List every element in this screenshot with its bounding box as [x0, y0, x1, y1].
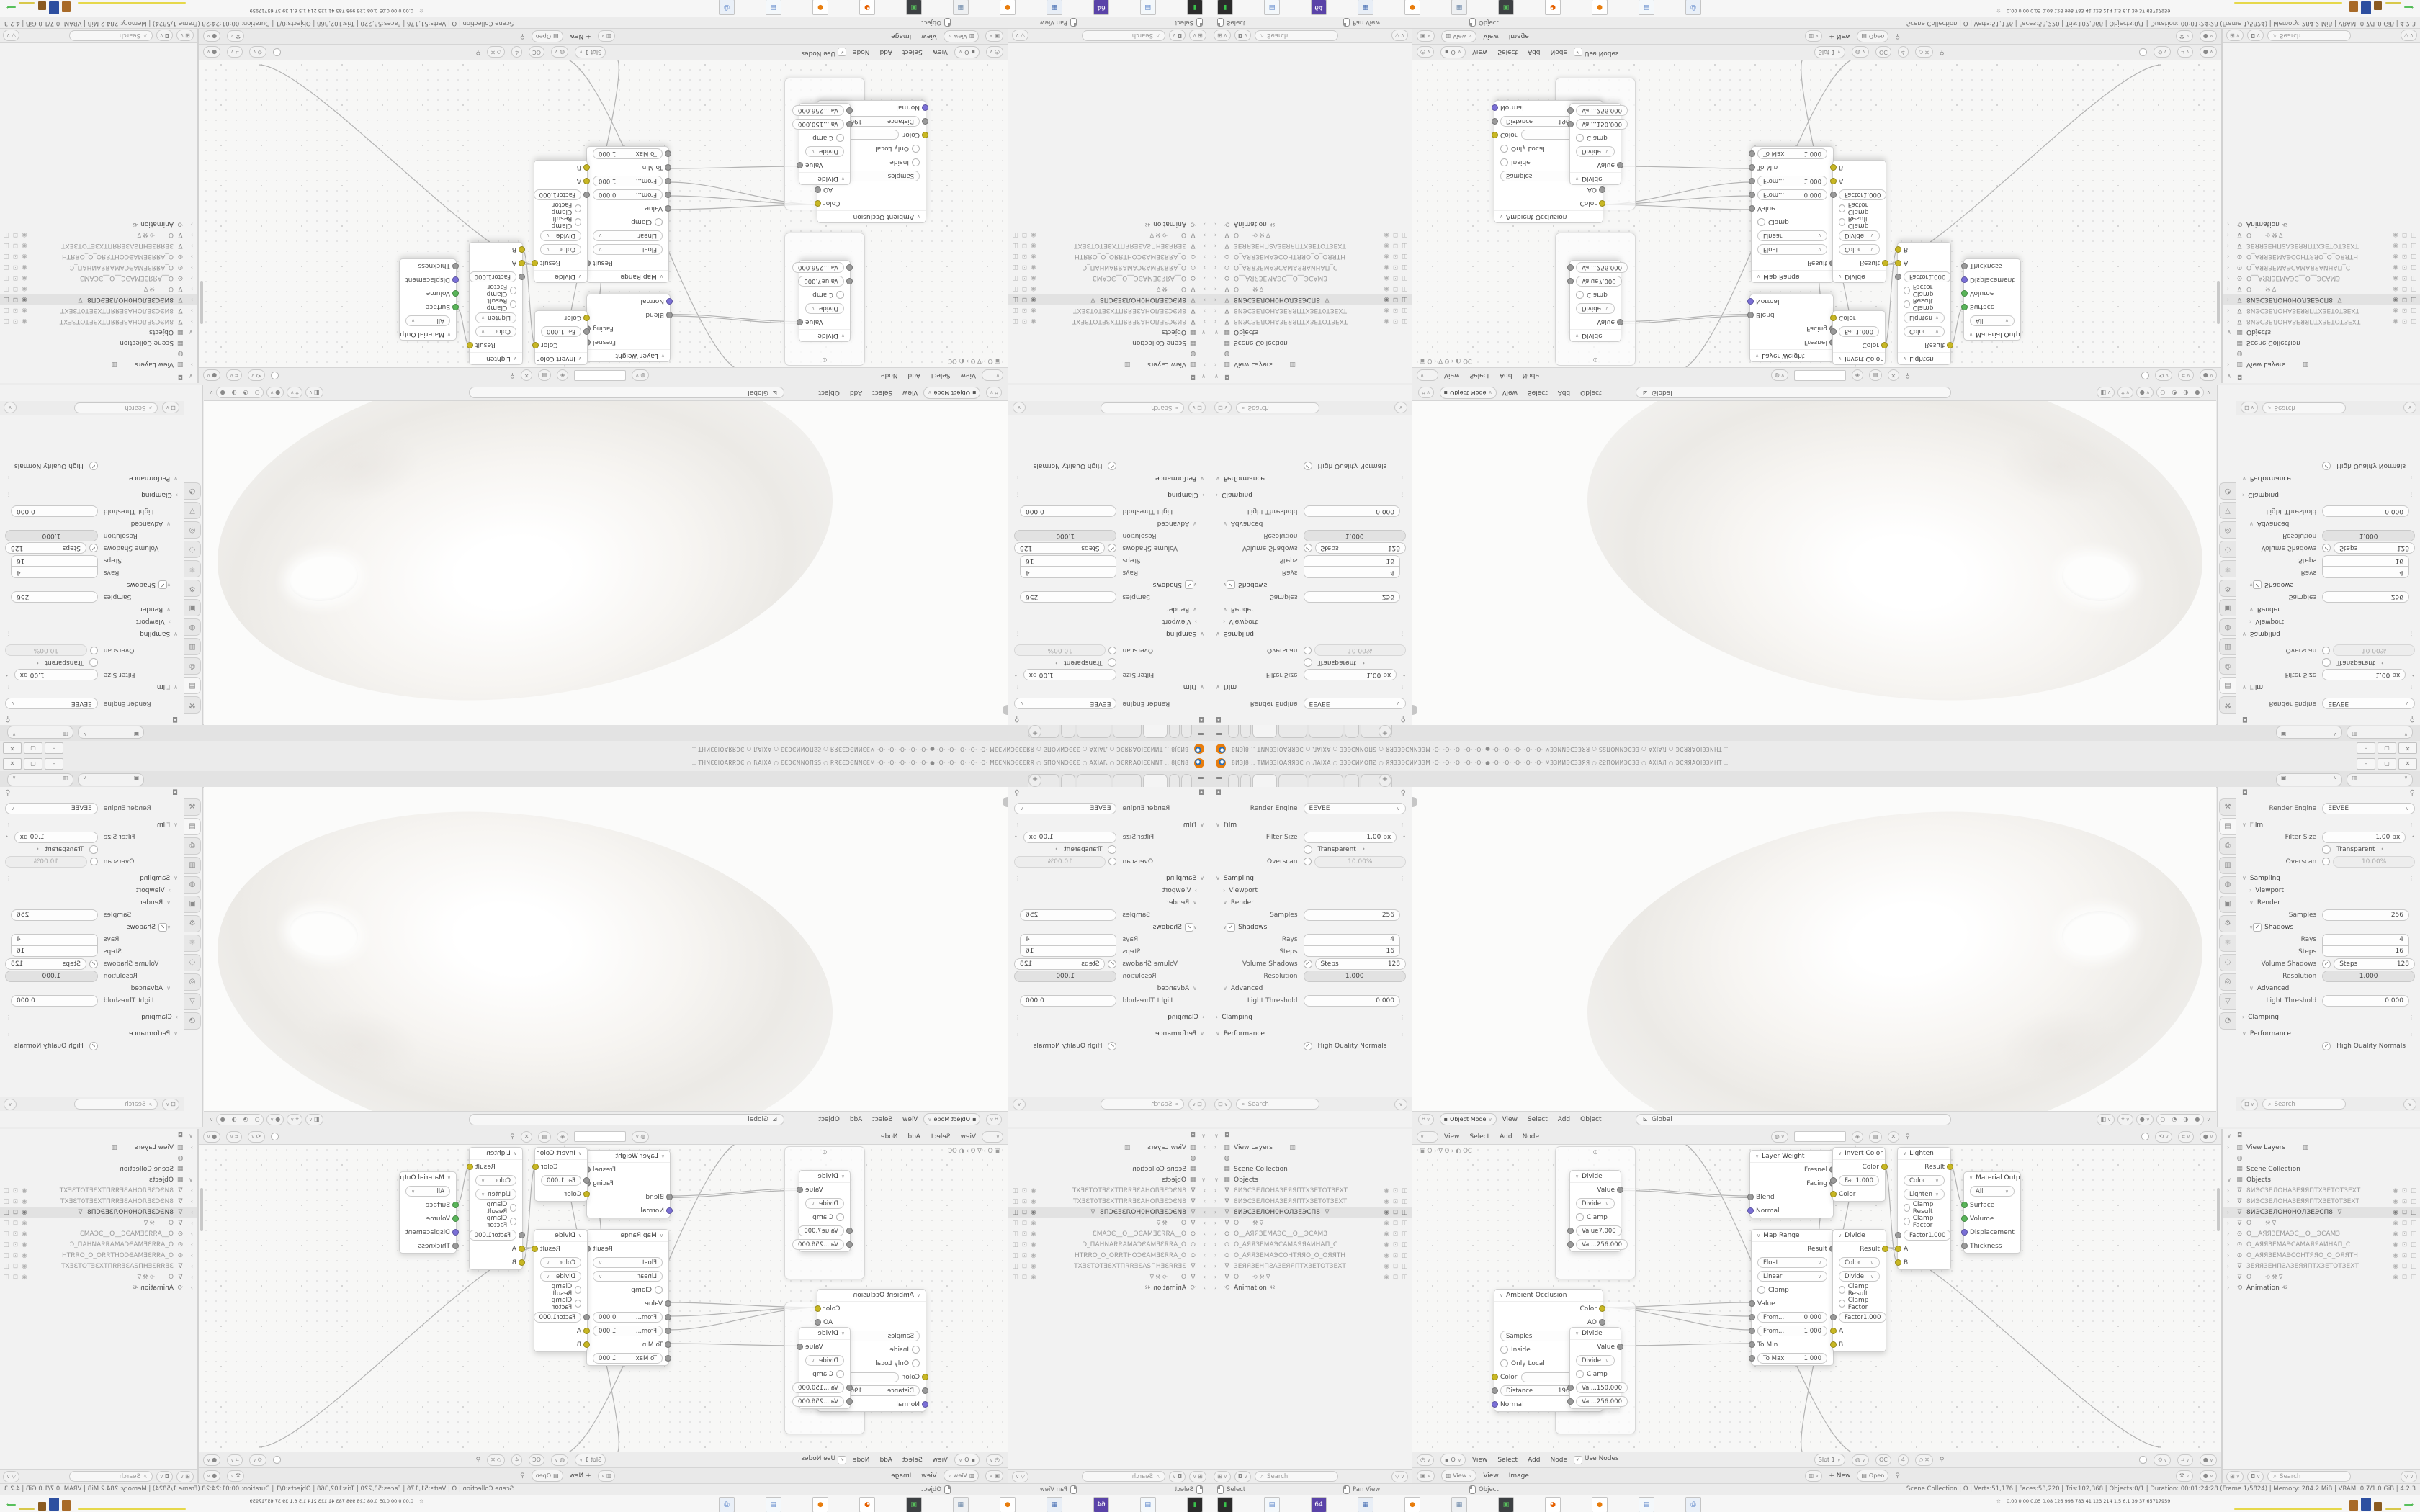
node-dropdown[interactable]: Color∨	[540, 1257, 581, 1268]
outliner-row[interactable]: › ⊙ О_АЯЯЗЕМАЭСАМАЯЯАИНАП_С ◉ ⊡ ◫	[1210, 262, 1412, 273]
subsection-label[interactable]: Viewport	[1229, 618, 1258, 626]
viewport-disable-icon[interactable]: ⊡	[1393, 275, 1398, 282]
outliner-row[interactable]: › ⟲ Animation 42	[1210, 219, 1412, 230]
hide-toggle-icon[interactable]: ◉	[22, 264, 27, 271]
viewport-disable-icon[interactable]: ⊡	[1393, 1230, 1398, 1238]
section-label[interactable]: Clamping	[2248, 1014, 2279, 1021]
subsection-label[interactable]: Advanced	[131, 985, 163, 992]
node-row[interactable]: B	[1898, 243, 1950, 256]
section-label[interactable]: Film	[1224, 684, 1237, 691]
outliner-row[interactable]: › ⊙ О_АЯЯЗЕМАЭСОНТЯЯО_О_ОЯЯТН ◉ ⊡ ◫	[1008, 1250, 1210, 1261]
grid-snap-button[interactable]: ⌗∨	[227, 47, 243, 58]
node-dropdown[interactable]: Color∨	[540, 244, 581, 255]
render-disable-icon[interactable]: ◫	[1402, 1274, 1407, 1281]
workspace-tab[interactable]	[1345, 774, 1359, 787]
node-row[interactable]: Color	[1833, 1187, 1885, 1201]
shader-context-dropdown[interactable]: ▪О∨	[1440, 46, 1466, 58]
outliner-row[interactable]: › ∇ 8ИЭСЗЕЛОНАЗЕЯЯПТХЗЕТОТЗЕХТ ◉ ⊡ ◫	[1008, 316, 1210, 327]
shader-footer-menu-item[interactable]: View	[1472, 1457, 1487, 1464]
viewport-disable-icon[interactable]: ⊡	[13, 286, 18, 293]
shader-context-dropdown[interactable]: ▪О∨	[954, 46, 980, 58]
workspace-tab[interactable]	[1169, 774, 1180, 787]
properties-tab-icon[interactable]: ◍	[2219, 618, 2236, 636]
material-id-icon[interactable]: ◍∨	[551, 1454, 568, 1466]
section-label[interactable]: Sampling	[1224, 631, 1254, 638]
donut-mesh[interactable]	[204, 385, 855, 725]
render-disable-icon[interactable]: ◫	[2411, 1220, 2416, 1227]
hide-toggle-icon[interactable]: ◉	[1031, 297, 1036, 304]
render-disable-icon[interactable]: ◫	[1013, 307, 1018, 315]
outliner-row[interactable]: › ∇ ЗЕЯЯЗЕНПƧАЗЕЯЯПТХЗЕТОТЗЕХТ ◉ ⊡ ◫	[1008, 1261, 1210, 1272]
outliner-row[interactable]: › ∇ 8ИЭСЗЕЛОН0НОЛЗЕЭСП8 ∇ ◉ ⊡ ◫	[1210, 294, 1412, 305]
snap-toggle[interactable]	[271, 1133, 279, 1140]
outliner-row[interactable]: ▦ Scene Collection	[1008, 1164, 1210, 1174]
node-row[interactable]: Val...256.000	[1570, 1238, 1621, 1251]
output-socket[interactable]	[1947, 342, 1953, 348]
tool-settings-button[interactable]: ⚒∨	[227, 1470, 244, 1482]
taskbar-app-icon[interactable]: ▦	[953, 1497, 969, 1512]
section-label[interactable]: Clamping	[1222, 492, 1252, 499]
viewport-disable-icon[interactable]: ⊡	[1393, 243, 1398, 250]
viewport-3d[interactable]: ⌗∨ ▪Object Mode∨ ViewSelectAddObject ⊾Gl…	[204, 787, 1008, 1127]
volume-shadows-checkbox[interactable]: ✓	[89, 960, 98, 968]
outliner-row[interactable]: › ⊙ О_АЯЯЗЕМАЭСАМАЯЯАИНАП_С ◉ ⊡ ◫	[0, 1239, 197, 1250]
fake-user-button[interactable]: ◈	[1852, 370, 1863, 382]
render-disable-icon[interactable]: ◫	[4, 1230, 9, 1238]
node-row[interactable]: Lighten∨	[1898, 311, 1950, 325]
outliner-row[interactable]: › ⊙ О_АЯЯЗЕМАЭСАМАЯЯАИНАП_С ◉ ⊡ ◫	[2223, 1239, 2420, 1250]
scrollbar[interactable]	[2217, 1188, 2220, 1231]
render-disable-icon[interactable]: ◫	[4, 232, 9, 239]
fake-user-button[interactable]: ◈	[557, 1131, 568, 1143]
overlay-button[interactable]: ●∨	[203, 47, 220, 58]
node-value-field[interactable]: Val...256.000	[792, 1239, 844, 1250]
hide-toggle-icon[interactable]: ◉	[1031, 1252, 1036, 1259]
open-image-button[interactable]: ▤Open	[532, 30, 563, 42]
node-row[interactable]: Factor1.000	[1898, 1228, 1950, 1242]
node-value-field[interactable]: Val...256.000	[792, 262, 844, 273]
properties-tab-icon[interactable]: ◎	[184, 973, 201, 991]
pin-icon[interactable]: ⚲	[2410, 710, 2415, 723]
slot-dropdown[interactable]: Slot 1∨	[1814, 1454, 1845, 1466]
hide-toggle-icon[interactable]: ◉	[22, 1252, 27, 1259]
restore-button[interactable]: ▢	[2378, 742, 2396, 754]
viewport-disable-icon[interactable]: ⊡	[13, 1187, 18, 1194]
value-field[interactable]: 1.00 px	[2322, 832, 2406, 843]
viewport-disable-icon[interactable]: ⊡	[13, 1263, 18, 1270]
hide-toggle-icon[interactable]: ◉	[2393, 1187, 2398, 1194]
node-row[interactable]: A	[534, 174, 587, 188]
outliner-row[interactable]: › ∇ 8ИЭСЗЕЛОНАЗЕЯЯПТХЗЕТОТЗЕХТ ◉ ⊡ ◫	[0, 1185, 197, 1196]
scene-selector[interactable]: ▥∨	[2347, 726, 2413, 739]
grid-snap-button[interactable]: ⌗∨	[227, 1454, 243, 1466]
node-row[interactable]: Color	[535, 338, 587, 352]
node-row[interactable]: Divide∨	[1570, 145, 1621, 158]
section-label[interactable]: Sampling	[1166, 875, 1196, 882]
shader-context-dropdown[interactable]: ▪О∨	[1440, 1454, 1466, 1466]
value-field[interactable]: 1.00 px	[1304, 670, 1397, 681]
overscan-field[interactable]: 10.00%	[1314, 856, 1406, 868]
node-row[interactable]: Fresnel	[1750, 336, 1833, 349]
input-socket[interactable]	[666, 1207, 673, 1214]
node-value-field[interactable]: Factor1.000	[1839, 189, 1886, 200]
shader-node[interactable]: ∨Material Output All∨	[399, 258, 457, 341]
section-label[interactable]: Clamping	[141, 1014, 172, 1021]
render-disable-icon[interactable]: ◫	[4, 1274, 9, 1281]
node-row[interactable]: To Min	[1752, 1338, 1833, 1351]
editor-type-button[interactable]: ⊟∨	[1214, 402, 1232, 414]
taskbar-app-icon[interactable]: ▤	[1639, 0, 1654, 15]
properties-tab-icon[interactable]: ⎙	[184, 837, 201, 855]
viewport-disable-icon[interactable]: ⊡	[2402, 1274, 2407, 1281]
input-socket[interactable]	[665, 1355, 671, 1362]
outliner-display-mode-button[interactable]: ⊞∨	[2226, 30, 2244, 42]
outliner-row[interactable]: › ∇ 8ИЭСЗЕЛОН0НОЛЗЕЭСП8 ∇ ◉ ⊡ ◫	[1008, 294, 1210, 305]
input-socket[interactable]	[1961, 1202, 1968, 1208]
render-disable-icon[interactable]: ◫	[1013, 243, 1018, 250]
close-button[interactable]: ✕	[3, 758, 22, 770]
node-row[interactable]: Normal	[587, 1204, 670, 1218]
taskbar-app-icon[interactable]: ▤	[1639, 1497, 1654, 1512]
outliner-row[interactable]: ∨ ▦ Objects	[0, 1174, 197, 1185]
section-checkbox[interactable]: ✓	[1185, 581, 1193, 590]
pin-icon[interactable]: ⚲	[1940, 1457, 1945, 1464]
node-value-field[interactable]: From...0.000	[1757, 189, 1827, 200]
viewport-menu-item[interactable]: Object	[1580, 1116, 1601, 1123]
outliner-row[interactable]: › ⊙ О_АЯЯЗЕМАЭСОНТЯЯО_О_ОЯЯТН ◉ ⊡ ◫	[1008, 251, 1210, 262]
section-checkbox[interactable]: ✓	[158, 581, 167, 590]
node-row[interactable]: Val...150.000	[799, 117, 850, 131]
node-value-field[interactable]: Factor1.000	[534, 189, 581, 200]
node-row[interactable]: To Min	[1752, 161, 1833, 174]
input-socket[interactable]	[1961, 304, 1968, 310]
node-row[interactable]: Clamp Factor	[470, 284, 522, 297]
node-row[interactable]: All∨	[400, 1184, 456, 1198]
node-dropdown[interactable]: Color∨	[1839, 1257, 1880, 1268]
outliner-row[interactable]: › ⟲ Animation 42	[2223, 219, 2420, 230]
image-editor-type-button[interactable]: ▣∨	[1417, 31, 1435, 42]
steps-field[interactable]: Steps128	[1315, 958, 1406, 970]
shading-mode-button[interactable]: ●	[2192, 1115, 2203, 1125]
shading-mode-button[interactable]: ◔	[240, 388, 251, 398]
output-socket[interactable]	[1599, 1319, 1605, 1326]
outliner-filter-button[interactable]: ◘∨	[1169, 1471, 1186, 1482]
input-socket[interactable]	[665, 1300, 671, 1307]
hide-toggle-icon[interactable]: ◉	[22, 253, 27, 261]
value-field[interactable]: 4	[2322, 567, 2409, 579]
hide-toggle-icon[interactable]: ◉	[2393, 232, 2398, 239]
outliner-filter-dropdown[interactable]: ▽∨	[2401, 30, 2417, 42]
render-disable-icon[interactable]: ◫	[4, 1220, 9, 1227]
steps-field[interactable]: Steps128	[1315, 543, 1406, 554]
pin-icon[interactable]: ⚲	[1895, 1472, 1900, 1480]
node-row[interactable]: Color	[1494, 197, 1603, 210]
input-socket[interactable]	[1749, 1314, 1755, 1320]
input-socket[interactable]	[1567, 278, 1574, 284]
shader-menu-item[interactable]: Add	[1500, 1133, 1512, 1140]
node-row[interactable]: Clamp Result	[1833, 1283, 1886, 1297]
restore-button[interactable]: ▢	[2378, 758, 2396, 770]
resolution-slider[interactable]: 1.000	[2322, 531, 2415, 542]
render-disable-icon[interactable]: ◫	[2411, 297, 2416, 304]
taskbar-app-icon[interactable]: ▮	[1187, 0, 1203, 15]
node-row[interactable]: Clamp	[1752, 1283, 1833, 1297]
render-disable-icon[interactable]: ◫	[1402, 1187, 1407, 1194]
properties-search-input[interactable]: ⌕Search	[74, 402, 158, 413]
node-row[interactable]: Facing	[1750, 322, 1833, 336]
outliner-row[interactable]: › ∇ 8ИЭСЗЕЛОНАЗЕЯЯПТХЗЕТ0ТЗЕХТ ◉ ⊡ ◫	[2223, 1196, 2420, 1207]
node-row[interactable]: Linear∨	[587, 229, 668, 243]
outliner-row[interactable]: › ⊙ О_АЯЯЗЕМАЭСОНТЯЯО_О_ОЯЯТН ◉ ⊡ ◫	[2223, 251, 2420, 262]
overlay-button[interactable]: ●∨	[203, 370, 220, 382]
overscan-field[interactable]: 10.00%	[2333, 856, 2415, 868]
node-dropdown[interactable]: Divide∨	[1839, 230, 1880, 241]
workspace-menu-icon[interactable]: ≡	[1216, 774, 1222, 783]
checkbox[interactable]	[2322, 845, 2331, 854]
hide-toggle-icon[interactable]: ◉	[1384, 1230, 1389, 1238]
node-row[interactable]: From...1.000	[1752, 1324, 1833, 1338]
restore-button[interactable]: ▢	[24, 758, 42, 770]
hide-toggle-icon[interactable]: ◉	[1384, 286, 1389, 293]
outliner-row[interactable]: › ∇ О ⟲ ⚒ ∇ ◉ ⊡ ◫	[2223, 1272, 2420, 1282]
image-menu-item[interactable]: View	[921, 1472, 936, 1480]
outliner-row[interactable]: ◍	[1210, 1153, 1412, 1164]
scene-selector[interactable]: ▥∨	[7, 726, 73, 739]
workspace-tab[interactable]	[1252, 725, 1277, 738]
viewport-disable-icon[interactable]: ⊡	[13, 1274, 18, 1281]
input-socket[interactable]	[1567, 107, 1574, 114]
node-row[interactable]: Color	[535, 1187, 587, 1201]
outliner-row[interactable]: › ∇ О ⟲ ⚒ ∇ ◉ ⊡ ◫	[1210, 1272, 1412, 1282]
shader-menu-item[interactable]: Select	[1469, 372, 1489, 379]
volume-shadows-checkbox[interactable]: ✓	[2322, 544, 2331, 553]
editor-type-button[interactable]: ⊟∨	[162, 1099, 179, 1110]
node-row[interactable]: Thickness	[400, 259, 456, 273]
value-field[interactable]: 16	[11, 555, 98, 567]
input-socket[interactable]	[1749, 1355, 1755, 1362]
viewport-snap-button[interactable]: ⌗∨	[986, 1114, 1002, 1125]
viewport-disable-icon[interactable]: ⊡	[1393, 1241, 1398, 1248]
material-name-label[interactable]: ОС	[1875, 47, 1891, 58]
outliner-filter-dropdown[interactable]: ▽∨	[1391, 30, 1408, 42]
properties-tab-icon[interactable]: ▽	[184, 502, 201, 519]
node-value-field[interactable]: From...1.000	[593, 1326, 663, 1336]
render-disable-icon[interactable]: ◫	[1013, 318, 1018, 325]
viewport-disable-icon[interactable]: ⊡	[1022, 318, 1027, 325]
input-socket[interactable]	[846, 1385, 853, 1391]
node-row[interactable]: B	[470, 243, 522, 256]
close-button[interactable]: ✕	[2398, 742, 2417, 754]
outliner-row[interactable]: › ∇ 8ИЭСЗЕЛОНАЗЕЯЯПТХЗЕТОТЗЕХТ ◉ ⊡ ◫	[1008, 1185, 1210, 1196]
subsection-label[interactable]: Viewport	[1162, 887, 1191, 894]
material-name-label[interactable]: ОС	[529, 47, 544, 58]
value-field[interactable]: 4	[2322, 934, 2409, 945]
viewport-disable-icon[interactable]: ⊡	[1022, 286, 1027, 293]
node-row[interactable]: All∨	[1964, 1184, 2020, 1198]
taskbar-app-icon[interactable]: ▤	[766, 1497, 781, 1512]
input-socket[interactable]	[1567, 121, 1574, 127]
shading-mode-button[interactable]: ◑	[228, 388, 240, 398]
node-value-field[interactable]: Val...256.000	[792, 105, 844, 116]
pin-icon[interactable]: ⚲	[1895, 33, 1900, 40]
render-disable-icon[interactable]: ◫	[2411, 1187, 2416, 1194]
input-socket[interactable]	[583, 178, 590, 184]
node-dropdown[interactable]: Color∨	[1904, 326, 1945, 337]
node-row[interactable]: From...0.000	[587, 188, 668, 202]
node-row[interactable]: Lighten∨	[470, 311, 522, 325]
node-row[interactable]: Val...256.000	[1570, 1395, 1621, 1408]
overscan-checkbox[interactable]	[90, 858, 98, 865]
viewport-menu-item[interactable]: View	[902, 390, 918, 397]
input-socket[interactable]	[665, 1328, 671, 1334]
taskbar-app-icon[interactable]: ◕	[1545, 1497, 1561, 1512]
editor-type-button[interactable]: ⊟∨	[2241, 1099, 2258, 1110]
workspace-tab[interactable]	[1278, 725, 1307, 738]
overscan-field[interactable]: 10.00%	[2333, 645, 2415, 657]
outliner-row[interactable]: › ▥ View Layers ▥	[0, 1142, 197, 1153]
node-row[interactable]: Clamp Result	[534, 215, 587, 229]
input-socket[interactable]	[1749, 192, 1755, 198]
value-field[interactable]: 16	[2322, 945, 2409, 957]
viewport-disable-icon[interactable]: ⊡	[2402, 1198, 2407, 1205]
overscan-checkbox[interactable]	[1108, 647, 1116, 654]
resolution-slider[interactable]: 1.000	[1014, 971, 1116, 982]
taskbar-app-icon[interactable]: ▦	[953, 0, 969, 15]
input-socket[interactable]	[1567, 1241, 1574, 1248]
render-disable-icon[interactable]: ◫	[4, 1241, 9, 1248]
node-row[interactable]: Displacement	[1964, 1225, 2020, 1239]
node-value-field[interactable]: Val...150.000	[792, 119, 844, 130]
value-field[interactable]: 16	[1020, 555, 1116, 567]
outliner-row[interactable]: › ⊙ О__АЯЯЗЕМАЭС__О__ЭСАМЗ ◉ ⊡ ◫	[1008, 1228, 1210, 1239]
outliner-row[interactable]: › ∇ 8ИЭСЗЕЛОНАЗЕЯЯПТХЗЕТ0ТЗЕХТ ◉ ⊡ ◫	[0, 1196, 197, 1207]
hide-toggle-icon[interactable]: ◉	[1031, 1241, 1036, 1248]
image-menu-item[interactable]: View	[1483, 1472, 1498, 1480]
taskbar-app-icon[interactable]: ▦	[1358, 0, 1373, 15]
outliner-row[interactable]: › ⊙ О__АЯЯЗЕМАЭС__О__ЭСАМЗ ◉ ⊡ ◫	[1210, 1228, 1412, 1239]
hide-toggle-icon[interactable]: ◉	[1384, 1209, 1389, 1216]
properties-tab-icon[interactable]: ⚙	[2219, 915, 2236, 932]
shader-menu-item[interactable]: Node	[1523, 1133, 1540, 1140]
hide-toggle-icon[interactable]: ◉	[1031, 1263, 1036, 1270]
node-value-field[interactable]: From...1.000	[1757, 1326, 1827, 1336]
properties-tab-icon[interactable]: ⎙	[2219, 657, 2236, 675]
taskbar-app-icon[interactable]: 64	[1093, 1497, 1109, 1512]
render-disable-icon[interactable]: ◫	[2411, 264, 2416, 271]
node-value-field[interactable]: To Max1.000	[1757, 148, 1827, 159]
node-row[interactable]: Surface	[1964, 1198, 2020, 1212]
outliner-filter-icon[interactable]: ◘	[176, 373, 184, 380]
render-disable-icon[interactable]: ◫	[4, 307, 9, 315]
checkbox[interactable]: ✓	[1304, 462, 1312, 471]
node-value-field[interactable]: Fac1.000	[1839, 326, 1879, 337]
node-row[interactable]: Clamp Factor	[470, 1215, 522, 1228]
input-socket[interactable]	[452, 276, 459, 283]
node-canvas[interactable]: ▣ О › ∇ О › ◐ ОС ⊙◎ ∨Divide	[199, 60, 1008, 367]
value-field[interactable]: 0.000	[1020, 506, 1116, 518]
viewport-disable-icon[interactable]: ⊡	[1022, 1209, 1027, 1216]
pin-icon[interactable]: ⚲	[510, 1133, 515, 1140]
shader-node[interactable]: ∨Map Range Result	[586, 146, 669, 283]
node-dropdown[interactable]: Float∨	[1757, 244, 1827, 255]
scrollbar[interactable]	[200, 1188, 203, 1231]
node-row[interactable]: Color	[1833, 311, 1885, 325]
node-row[interactable]: All∨	[1964, 314, 2020, 328]
slot-dropdown[interactable]: Slot 1∨	[1814, 46, 1845, 58]
input-socket[interactable]	[1830, 315, 1837, 321]
node-dropdown[interactable]: Color∨	[475, 1175, 516, 1186]
node-row[interactable]: All∨	[400, 314, 456, 328]
image-id-button[interactable]: ▥∨	[1805, 31, 1823, 42]
shader-node[interactable]: ∨Divide Value	[1569, 260, 1621, 342]
outliner-row[interactable]: › ⊙ О__АЯЯЗЕМАЭС__О__ЭСАМЗ ◉ ⊡ ◫	[0, 273, 197, 284]
render-disable-icon[interactable]: ◫	[1013, 1220, 1018, 1227]
node-row[interactable]: Divide∨	[799, 1197, 850, 1210]
resolution-slider[interactable]: 1.000	[1014, 531, 1116, 542]
node-row[interactable]: Float∨	[587, 1256, 668, 1269]
taskbar-app-icon[interactable]: ⎙	[719, 1497, 735, 1512]
image-view-mode-dropdown[interactable]: ▥View∨	[944, 1470, 980, 1482]
node-dropdown[interactable]: Float∨	[593, 244, 663, 255]
input-socket[interactable]	[583, 1341, 590, 1348]
shader-node[interactable]: ∨Divide Value	[1569, 1170, 1621, 1252]
image-menu-item[interactable]: View	[921, 33, 936, 40]
input-socket[interactable]	[452, 1243, 459, 1249]
outliner-display-mode-button[interactable]: ⊞∨	[176, 30, 194, 42]
node-dropdown[interactable]: Divide∨	[540, 1271, 581, 1282]
node-value-field[interactable]: Factor1.000	[469, 1230, 516, 1241]
properties-options-button[interactable]: ∨	[1394, 1099, 1407, 1110]
node-dropdown[interactable]: Lighten∨	[1904, 312, 1945, 323]
viewport-disable-icon[interactable]: ⊡	[13, 307, 18, 315]
taskbar-app-icon[interactable]: ●	[1404, 0, 1420, 15]
node-row[interactable]: Val...256.000	[799, 261, 850, 274]
properties-tab-icon[interactable]: ◌	[184, 541, 201, 558]
grid-snap-button[interactable]: ⌗∨	[2178, 370, 2194, 382]
hide-toggle-icon[interactable]: ◉	[1031, 253, 1036, 261]
shader-node[interactable]: ∨Lighten Result	[1897, 1147, 1951, 1270]
node-row[interactable]: Normal	[1750, 294, 1833, 308]
node-row[interactable]: Divide∨	[534, 1269, 587, 1283]
input-socket[interactable]	[452, 1215, 459, 1222]
shader-node[interactable]: ∨Layer Weight Fresnel	[1749, 1150, 1834, 1218]
hide-toggle-icon[interactable]: ◉	[22, 243, 27, 250]
node-row[interactable]: Divide∨	[1570, 1197, 1621, 1210]
checkbox[interactable]: ✓	[2322, 462, 2331, 471]
hide-toggle-icon[interactable]: ◉	[1384, 1220, 1389, 1227]
node-row[interactable]: Thickness	[1964, 259, 2020, 273]
outliner-filter-button[interactable]: ◘∨	[156, 30, 173, 42]
checkbox[interactable]	[89, 845, 98, 854]
material-name-field[interactable]	[1794, 1131, 1846, 1142]
output-socket[interactable]	[467, 342, 473, 348]
output-socket[interactable]	[1947, 1164, 1953, 1170]
render-disable-icon[interactable]: ◫	[1013, 1274, 1018, 1281]
shader-node[interactable]: ∨Lighten Result	[469, 242, 523, 365]
workspace-tab[interactable]	[1061, 774, 1075, 787]
editor-type-button[interactable]: ⊟∨	[1188, 402, 1206, 414]
overscan-field[interactable]: 10.00%	[1014, 645, 1106, 657]
node-row[interactable]: From...1.000	[587, 174, 668, 188]
output-socket[interactable]	[1617, 1344, 1623, 1350]
input-socket[interactable]	[665, 205, 671, 212]
snap-mode-button[interactable]: ⟲∨	[2154, 1454, 2171, 1466]
node-row[interactable]: Value7.000	[1570, 274, 1621, 288]
properties-tab-icon[interactable]: ▤	[184, 818, 201, 835]
input-socket[interactable]	[1492, 104, 1498, 111]
node-row[interactable]: Val...150.000	[799, 1381, 850, 1395]
shader-footer-menu-item[interactable]: View	[933, 1457, 948, 1464]
